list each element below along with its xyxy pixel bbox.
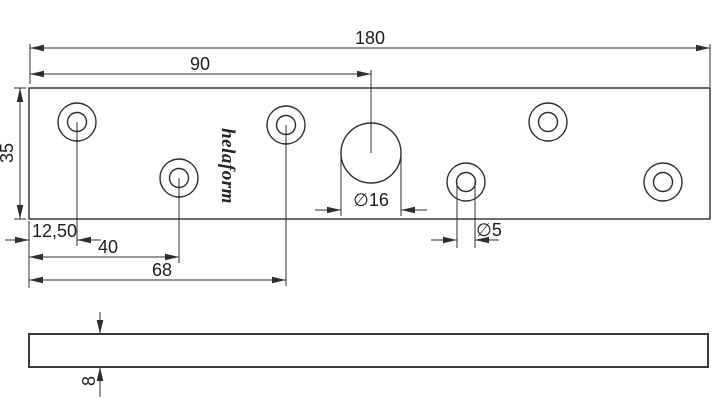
countersunk-hole-5 <box>529 103 567 141</box>
hole-inner-circle <box>539 113 558 132</box>
hole-inner-circle <box>654 173 673 192</box>
hole-outer-circle <box>529 103 567 141</box>
countersunk-hole-6 <box>644 163 682 201</box>
hole-outer-circle <box>644 163 682 201</box>
dim-label-first-hole-offset: 12,50 <box>32 221 77 241</box>
brand-text: helaform <box>217 128 238 204</box>
technical-drawing-canvas: helaform 180 90 35 12,50 40 <box>0 0 715 414</box>
dim-label-center-hole-position: 90 <box>190 54 210 74</box>
dim-label-second-hole-offset: 40 <box>98 237 118 257</box>
side-view-outline <box>29 334 708 367</box>
extension-lines <box>14 44 710 288</box>
dim-label-plate-width: 35 <box>0 143 17 163</box>
dim-label-dia16: ∅16 <box>353 190 389 210</box>
dim-label-overall-length: 180 <box>355 28 385 48</box>
dimension-labels: 180 90 35 12,50 40 68 ∅16 ∅5 <box>0 28 502 280</box>
countersunk-hole-4 <box>447 163 485 201</box>
side-view: 8 <box>29 312 708 397</box>
hole-inner-circle <box>457 173 476 192</box>
dim-label-third-hole-offset: 68 <box>152 260 172 280</box>
technical-drawing-page: helaform 180 90 35 12,50 40 <box>0 0 715 414</box>
hole-outer-circle <box>447 163 485 201</box>
dim-label-thickness: 8 <box>79 376 99 386</box>
dim-label-dia5: ∅5 <box>476 220 502 240</box>
